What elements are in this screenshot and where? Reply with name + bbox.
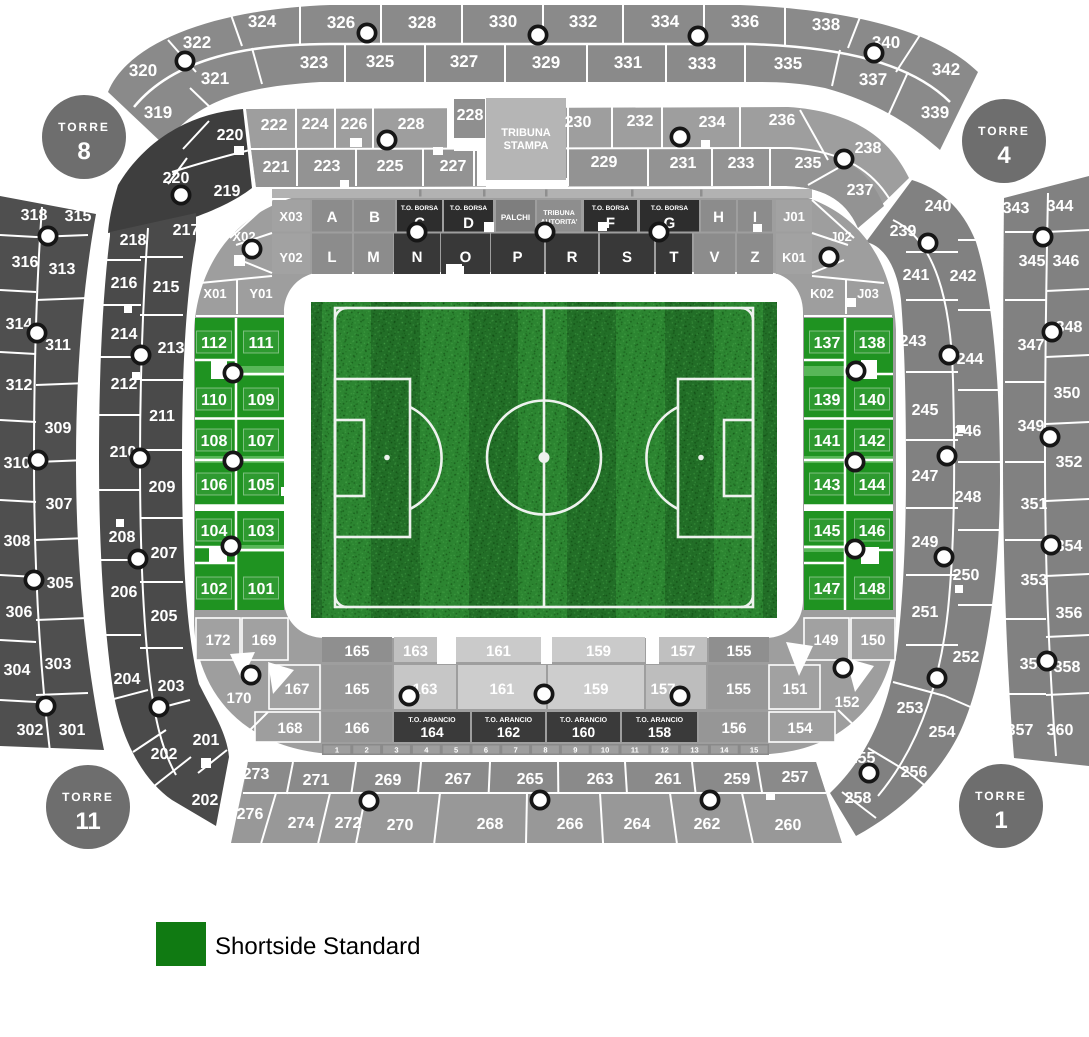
svg-text:K01: K01: [782, 250, 806, 265]
svg-text:224: 224: [302, 116, 329, 133]
svg-text:1: 1: [335, 746, 339, 755]
svg-text:250: 250: [953, 567, 980, 584]
svg-text:321: 321: [201, 69, 229, 88]
svg-text:152: 152: [834, 694, 859, 711]
svg-text:252: 252: [953, 649, 980, 666]
svg-text:STAMPA: STAMPA: [504, 140, 549, 152]
svg-text:157: 157: [670, 643, 695, 660]
svg-text:242: 242: [950, 268, 977, 285]
svg-text:151: 151: [782, 681, 807, 698]
svg-text:138: 138: [859, 335, 886, 352]
svg-text:308: 308: [4, 533, 31, 550]
svg-text:146: 146: [859, 523, 886, 540]
svg-text:11: 11: [631, 746, 639, 755]
svg-text:10: 10: [601, 746, 609, 755]
svg-text:165: 165: [344, 643, 369, 660]
svg-text:353: 353: [1021, 572, 1048, 589]
svg-text:272: 272: [335, 815, 362, 832]
svg-text:332: 332: [569, 12, 597, 31]
svg-text:154: 154: [787, 720, 813, 737]
svg-text:357: 357: [1007, 722, 1034, 739]
svg-text:R: R: [567, 249, 578, 266]
svg-text:259: 259: [724, 771, 751, 788]
svg-text:312: 312: [6, 377, 33, 394]
svg-text:164: 164: [420, 724, 444, 740]
svg-text:305: 305: [47, 575, 74, 592]
svg-text:307: 307: [46, 496, 73, 513]
svg-text:315: 315: [65, 208, 92, 225]
svg-text:7: 7: [514, 746, 518, 755]
svg-text:342: 342: [932, 60, 960, 79]
svg-text:8: 8: [77, 138, 90, 165]
svg-text:352: 352: [1056, 454, 1083, 471]
svg-text:150: 150: [860, 632, 885, 649]
svg-text:104: 104: [201, 523, 228, 540]
svg-text:213: 213: [158, 340, 185, 357]
svg-text:149: 149: [813, 632, 838, 649]
svg-text:269: 269: [375, 772, 402, 789]
svg-text:358: 358: [1054, 659, 1081, 676]
svg-text:320: 320: [129, 61, 157, 80]
svg-text:109: 109: [248, 392, 275, 409]
svg-text:103: 103: [248, 523, 275, 540]
svg-text:I: I: [753, 209, 757, 226]
svg-text:273: 273: [243, 766, 270, 783]
svg-text:306: 306: [6, 604, 33, 621]
svg-text:313: 313: [49, 261, 76, 278]
svg-text:337: 337: [859, 70, 887, 89]
svg-text:270: 270: [387, 817, 414, 834]
svg-text:202: 202: [192, 792, 219, 809]
svg-text:343: 343: [1003, 200, 1030, 217]
svg-text:X03: X03: [279, 209, 302, 224]
svg-text:143: 143: [814, 477, 841, 494]
svg-text:T.O. ARANCIO: T.O. ARANCIO: [485, 717, 533, 724]
svg-text:140: 140: [859, 392, 886, 409]
svg-text:266: 266: [557, 816, 584, 833]
svg-text:106: 106: [201, 477, 228, 494]
svg-text:3: 3: [394, 746, 398, 755]
svg-text:205: 205: [151, 608, 178, 625]
svg-text:5: 5: [454, 746, 458, 755]
svg-text:276: 276: [237, 806, 264, 823]
svg-text:303: 303: [45, 656, 72, 673]
svg-text:15: 15: [750, 746, 758, 755]
svg-text:333: 333: [688, 54, 716, 73]
svg-text:253: 253: [897, 700, 924, 717]
svg-text:349: 349: [1018, 418, 1045, 435]
svg-text:T.O. ARANCIO: T.O. ARANCIO: [408, 717, 456, 724]
svg-text:Z: Z: [750, 249, 759, 266]
svg-text:Shortside Standard: Shortside Standard: [215, 933, 420, 960]
svg-text:8: 8: [543, 746, 547, 755]
svg-text:335: 335: [774, 54, 802, 73]
svg-text:339: 339: [921, 103, 949, 122]
svg-text:159: 159: [583, 681, 608, 698]
svg-text:203: 203: [158, 678, 185, 695]
svg-text:155: 155: [726, 681, 751, 698]
svg-text:11: 11: [75, 808, 100, 835]
svg-text:169: 169: [251, 632, 276, 649]
svg-text:Y01: Y01: [249, 286, 272, 301]
svg-text:241: 241: [903, 267, 930, 284]
svg-text:245: 245: [912, 402, 939, 419]
svg-text:201: 201: [193, 732, 220, 749]
svg-text:226: 226: [341, 116, 368, 133]
svg-text:9: 9: [573, 746, 577, 755]
svg-text:144: 144: [859, 477, 886, 494]
svg-text:139: 139: [814, 392, 841, 409]
svg-text:214: 214: [111, 326, 138, 343]
svg-text:356: 356: [1056, 605, 1083, 622]
svg-text:311: 311: [45, 337, 71, 354]
svg-text:204: 204: [114, 671, 141, 688]
svg-text:145: 145: [814, 523, 841, 540]
svg-text:161: 161: [486, 643, 511, 660]
svg-text:110: 110: [201, 392, 227, 409]
svg-text:324: 324: [248, 12, 277, 31]
svg-text:14: 14: [720, 746, 729, 755]
svg-text:351: 351: [1021, 496, 1048, 513]
svg-text:318: 318: [21, 207, 48, 224]
svg-text:107: 107: [248, 433, 275, 450]
svg-text:225: 225: [377, 158, 404, 175]
svg-text:F: F: [606, 215, 615, 232]
svg-text:223: 223: [314, 158, 341, 175]
svg-text:271: 271: [303, 772, 330, 789]
svg-text:K02: K02: [810, 286, 834, 301]
svg-text:165: 165: [344, 681, 369, 698]
svg-text:160: 160: [572, 724, 596, 740]
svg-text:244: 244: [957, 351, 984, 368]
svg-text:167: 167: [284, 681, 309, 698]
svg-text:260: 260: [775, 817, 802, 834]
svg-text:239: 239: [890, 223, 917, 240]
svg-text:229: 229: [591, 154, 618, 171]
svg-text:105: 105: [248, 477, 275, 494]
svg-text:T.O. BORSA: T.O. BORSA: [401, 205, 439, 212]
svg-text:TRIBUNA: TRIBUNA: [543, 210, 575, 217]
svg-text:326: 326: [327, 13, 355, 32]
svg-text:231: 231: [670, 155, 697, 172]
svg-text:319: 319: [144, 103, 172, 122]
svg-text:220: 220: [217, 127, 244, 144]
svg-text:166: 166: [344, 720, 369, 737]
svg-text:108: 108: [201, 433, 228, 450]
svg-text:345: 345: [1019, 253, 1046, 270]
svg-text:261: 261: [655, 771, 682, 788]
svg-text:222: 222: [261, 117, 288, 134]
svg-text:238: 238: [855, 140, 882, 157]
svg-text:J03: J03: [857, 286, 879, 301]
svg-text:329: 329: [532, 53, 560, 72]
svg-text:301: 301: [59, 722, 86, 739]
svg-text:264: 264: [624, 816, 651, 833]
svg-text:267: 267: [445, 771, 472, 788]
svg-text:325: 325: [366, 52, 394, 71]
svg-text:102: 102: [201, 581, 228, 598]
svg-text:T.O. BORSA: T.O. BORSA: [592, 205, 630, 212]
svg-text:B: B: [369, 209, 380, 226]
svg-text:J01: J01: [783, 209, 805, 224]
svg-text:215: 215: [153, 279, 180, 296]
svg-text:209: 209: [149, 479, 176, 496]
svg-text:PALCHI: PALCHI: [501, 213, 530, 222]
svg-text:T.O. BORSA: T.O. BORSA: [651, 205, 689, 212]
svg-text:334: 334: [651, 12, 680, 31]
svg-text:208: 208: [109, 529, 136, 546]
svg-text:316: 316: [12, 254, 39, 271]
svg-text:248: 248: [955, 489, 982, 506]
svg-text:217: 217: [173, 222, 200, 239]
svg-text:12: 12: [661, 746, 669, 755]
svg-text:230: 230: [565, 114, 592, 131]
svg-text:D: D: [463, 215, 474, 232]
svg-text:TRIBUNA: TRIBUNA: [501, 127, 551, 139]
svg-text:330: 330: [489, 12, 517, 31]
svg-text:M: M: [367, 249, 380, 266]
svg-text:T.O. BORSA: T.O. BORSA: [450, 205, 488, 212]
svg-text:302: 302: [17, 722, 44, 739]
svg-text:257: 257: [782, 769, 809, 786]
svg-text:233: 233: [728, 155, 755, 172]
svg-text:170: 170: [226, 690, 251, 707]
svg-text:S: S: [622, 249, 632, 266]
svg-text:161: 161: [489, 681, 514, 698]
svg-text:240: 240: [925, 198, 952, 215]
svg-text:331: 331: [614, 53, 642, 72]
svg-text:A: A: [327, 209, 338, 226]
svg-text:TORRE: TORRE: [978, 124, 1030, 138]
svg-text:310: 310: [4, 455, 31, 472]
svg-text:TORRE: TORRE: [975, 789, 1027, 803]
svg-text:159: 159: [586, 643, 611, 660]
svg-text:251: 251: [912, 604, 939, 621]
svg-text:T: T: [669, 249, 678, 266]
svg-text:13: 13: [690, 746, 698, 755]
svg-text:172: 172: [205, 632, 230, 649]
svg-text:322: 322: [183, 33, 211, 52]
svg-text:218: 218: [120, 232, 147, 249]
svg-text:O: O: [460, 249, 472, 266]
svg-text:147: 147: [814, 581, 841, 598]
svg-text:360: 360: [1047, 722, 1074, 739]
svg-text:112: 112: [201, 335, 227, 352]
svg-text:141: 141: [814, 433, 841, 450]
svg-text:274: 274: [288, 815, 315, 832]
svg-text:V: V: [709, 249, 719, 266]
svg-text:148: 148: [859, 581, 886, 598]
svg-text:158: 158: [648, 724, 672, 740]
svg-text:N: N: [412, 249, 423, 266]
svg-text:254: 254: [929, 724, 956, 741]
svg-text:206: 206: [111, 584, 138, 601]
svg-text:2: 2: [365, 746, 369, 755]
svg-text:350: 350: [1054, 385, 1081, 402]
svg-text:4: 4: [997, 142, 1011, 169]
svg-text:142: 142: [859, 433, 886, 450]
svg-text:258: 258: [845, 790, 872, 807]
svg-text:162: 162: [497, 724, 521, 740]
svg-text:220: 220: [163, 170, 190, 187]
svg-text:L: L: [327, 249, 336, 266]
svg-text:327: 327: [450, 52, 478, 71]
svg-text:247: 247: [912, 468, 939, 485]
svg-text:H: H: [713, 209, 724, 226]
svg-text:336: 336: [731, 12, 759, 31]
svg-text:263: 263: [587, 771, 614, 788]
svg-text:228: 228: [398, 116, 425, 133]
svg-text:202: 202: [151, 746, 178, 763]
svg-text:304: 304: [4, 662, 31, 679]
svg-text:328: 328: [408, 13, 436, 32]
svg-text:168: 168: [277, 720, 302, 737]
svg-text:236: 236: [769, 112, 796, 129]
svg-text:237: 237: [847, 182, 874, 199]
svg-text:268: 268: [477, 816, 504, 833]
svg-text:137: 137: [814, 335, 841, 352]
svg-text:309: 309: [45, 420, 72, 437]
svg-text:232: 232: [627, 113, 654, 130]
svg-text:216: 216: [111, 275, 138, 292]
svg-text:Y02: Y02: [279, 250, 302, 265]
svg-text:T.O. ARANCIO: T.O. ARANCIO: [636, 717, 684, 724]
svg-text:346: 346: [1053, 253, 1080, 270]
svg-text:323: 323: [300, 53, 328, 72]
svg-text:234: 234: [699, 114, 726, 131]
svg-text:228: 228: [457, 107, 484, 124]
svg-text:221: 221: [263, 159, 290, 176]
svg-text:155: 155: [726, 643, 751, 660]
svg-text:1: 1: [994, 807, 1007, 834]
svg-text:243: 243: [900, 333, 927, 350]
svg-text:265: 265: [517, 771, 544, 788]
svg-text:111: 111: [249, 335, 274, 352]
svg-text:256: 256: [901, 764, 928, 781]
svg-text:344: 344: [1047, 198, 1074, 215]
svg-text:211: 211: [149, 408, 175, 425]
svg-text:6: 6: [484, 746, 488, 755]
svg-text:338: 338: [812, 15, 840, 34]
svg-text:T.O. ARANCIO: T.O. ARANCIO: [560, 717, 608, 724]
svg-text:156: 156: [721, 720, 746, 737]
svg-text:207: 207: [151, 545, 178, 562]
svg-text:262: 262: [694, 816, 721, 833]
svg-text:235: 235: [795, 155, 822, 172]
svg-text:X01: X01: [203, 286, 226, 301]
svg-text:163: 163: [403, 643, 428, 660]
svg-text:P: P: [512, 249, 522, 266]
svg-text:219: 219: [214, 183, 241, 200]
svg-text:227: 227: [440, 158, 467, 175]
svg-text:TORRE: TORRE: [62, 790, 114, 804]
svg-text:TORRE: TORRE: [58, 120, 110, 134]
svg-text:249: 249: [912, 534, 939, 551]
svg-text:101: 101: [248, 581, 275, 598]
svg-text:347: 347: [1018, 337, 1045, 354]
